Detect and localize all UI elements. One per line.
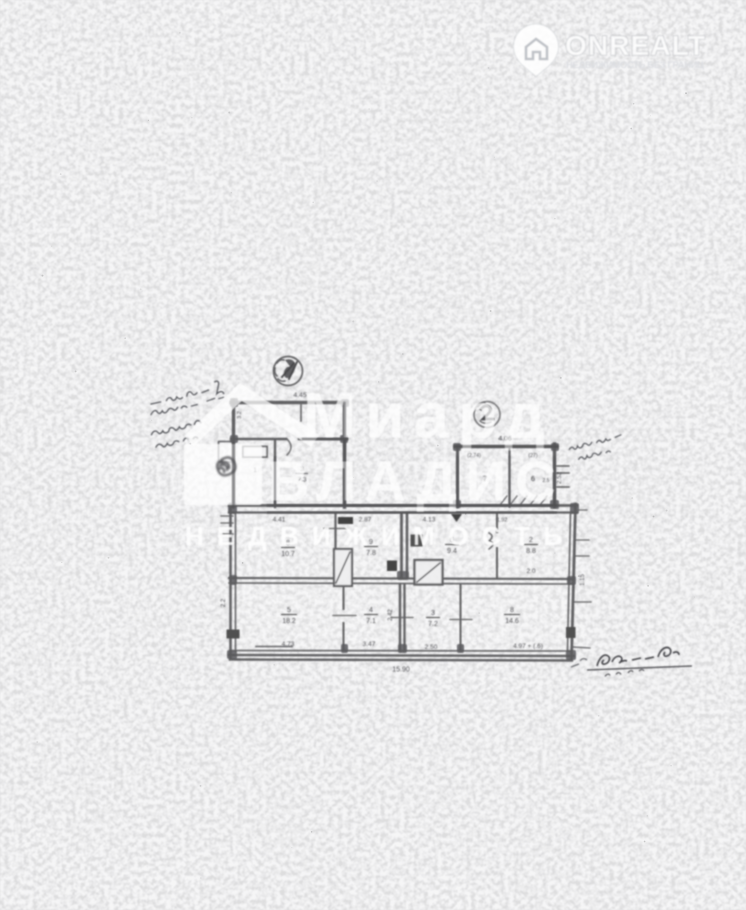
svg-text:6: 6 [531, 476, 535, 483]
svg-text:2.2: 2.2 [221, 598, 227, 607]
svg-text:1.15: 1.15 [580, 574, 586, 586]
svg-text:8: 8 [510, 607, 514, 614]
svg-text:7.8: 7.8 [366, 550, 376, 557]
svg-text:3.2: 3.2 [237, 411, 243, 419]
svg-text:4.73: 4.73 [282, 641, 295, 648]
svg-text:Н Е Д В И Ж И М О С Т Ь: Н Е Д В И Ж И М О С Т Ь [185, 521, 562, 551]
svg-text:4: 4 [369, 607, 373, 614]
svg-text:14.6: 14.6 [505, 618, 519, 625]
svg-text:3.47: 3.47 [363, 641, 376, 648]
svg-text:5: 5 [287, 607, 291, 614]
svg-text:7.2: 7.2 [428, 621, 438, 628]
svg-text:2.0: 2.0 [526, 568, 535, 575]
svg-text:7.1: 7.1 [366, 618, 376, 625]
svg-text:2.42: 2.42 [388, 609, 394, 621]
svg-text:4.97 + (.6): 4.97 + (.6) [513, 643, 543, 650]
svg-text:НЕДВИЖИМОСТЬ БЕЗ ГРАНИЦ: НЕДВИЖИМОСТЬ БЕЗ ГРАНИЦ [566, 60, 704, 71]
svg-text:10.7: 10.7 [281, 551, 295, 558]
svg-text:ONREALT: ONREALT [565, 30, 705, 61]
svg-text:4.06: 4.06 [498, 436, 511, 443]
svg-text:7: 7 [483, 476, 487, 483]
svg-text:15.90: 15.90 [392, 667, 410, 674]
svg-text:18.2: 18.2 [282, 618, 296, 625]
svg-text:3: 3 [431, 610, 435, 617]
svg-text:2.50: 2.50 [425, 644, 438, 651]
